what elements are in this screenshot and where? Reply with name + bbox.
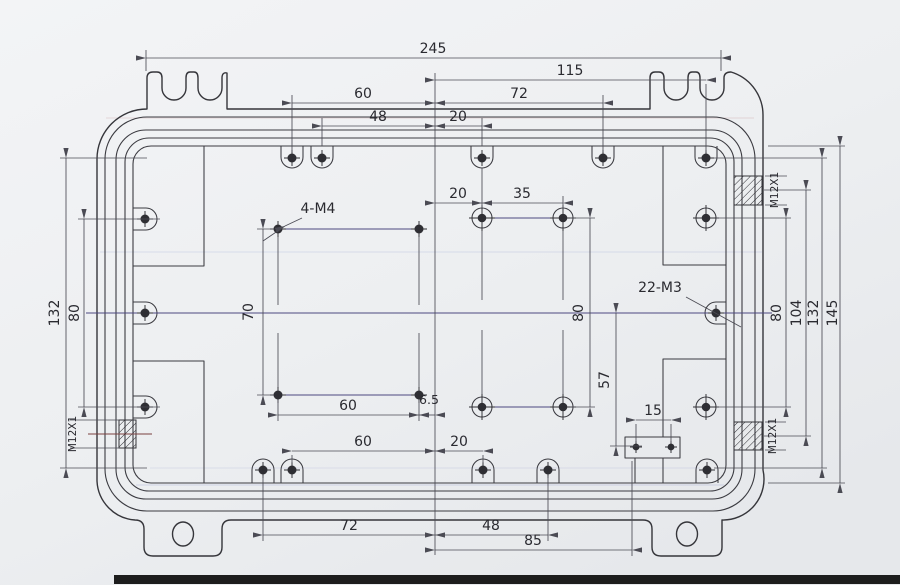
dim-label-top-60: 60: [354, 86, 372, 102]
scan-edge-band: [114, 575, 900, 584]
scanned-drawing-page: 245 115 60 72 48 20 20 35 4-M4 22-M3 70 …: [0, 0, 900, 585]
dim-label-left-132: 132: [47, 300, 63, 327]
dim-label-mid-80: 80: [571, 304, 587, 322]
dim-label-6-5: 6.5: [419, 392, 439, 407]
dim-label-right-132: 132: [806, 300, 822, 327]
dim-label-245: 245: [420, 41, 447, 57]
dim-label-57: 57: [597, 371, 613, 389]
dim-label-15: 15: [644, 403, 662, 419]
dim-label-115: 115: [557, 63, 584, 79]
dim-label-bot-85: 85: [524, 533, 542, 549]
dim-label-right-104: 104: [789, 300, 805, 327]
dim-label-left-80: 80: [67, 304, 83, 322]
thread-label-left: M12X1: [67, 416, 79, 452]
dim-label-top-72: 72: [510, 86, 528, 102]
dim-label-mid-20: 20: [449, 186, 467, 202]
dim-label-bot-60: 60: [354, 434, 372, 450]
dim-label-70: 70: [241, 303, 257, 321]
dim-label-m4-60: 60: [339, 398, 357, 414]
cable-gland-hatch-right-top: [734, 176, 762, 205]
dim-label-bot-20: 20: [450, 434, 468, 450]
cable-gland-hatch-right-bottom: [734, 422, 762, 450]
callout-4-m4: 4-M4: [301, 201, 336, 217]
callout-22-m3: 22-M3: [638, 280, 682, 296]
thread-label-right-bottom: M12X1: [767, 418, 779, 454]
dim-label-right-80: 80: [769, 304, 785, 322]
dim-label-right-145: 145: [825, 300, 841, 327]
dim-label-top-48: 48: [369, 109, 387, 125]
dim-label-mid-35: 35: [513, 186, 531, 202]
dim-label-bot-48: 48: [482, 518, 500, 534]
dim-label-top-20: 20: [449, 109, 467, 125]
thread-label-right-top: M12X1: [769, 172, 781, 208]
technical-drawing: 245 115 60 72 48 20 20 35 4-M4 22-M3 70 …: [0, 0, 900, 585]
dim-label-bot-72: 72: [340, 518, 358, 534]
